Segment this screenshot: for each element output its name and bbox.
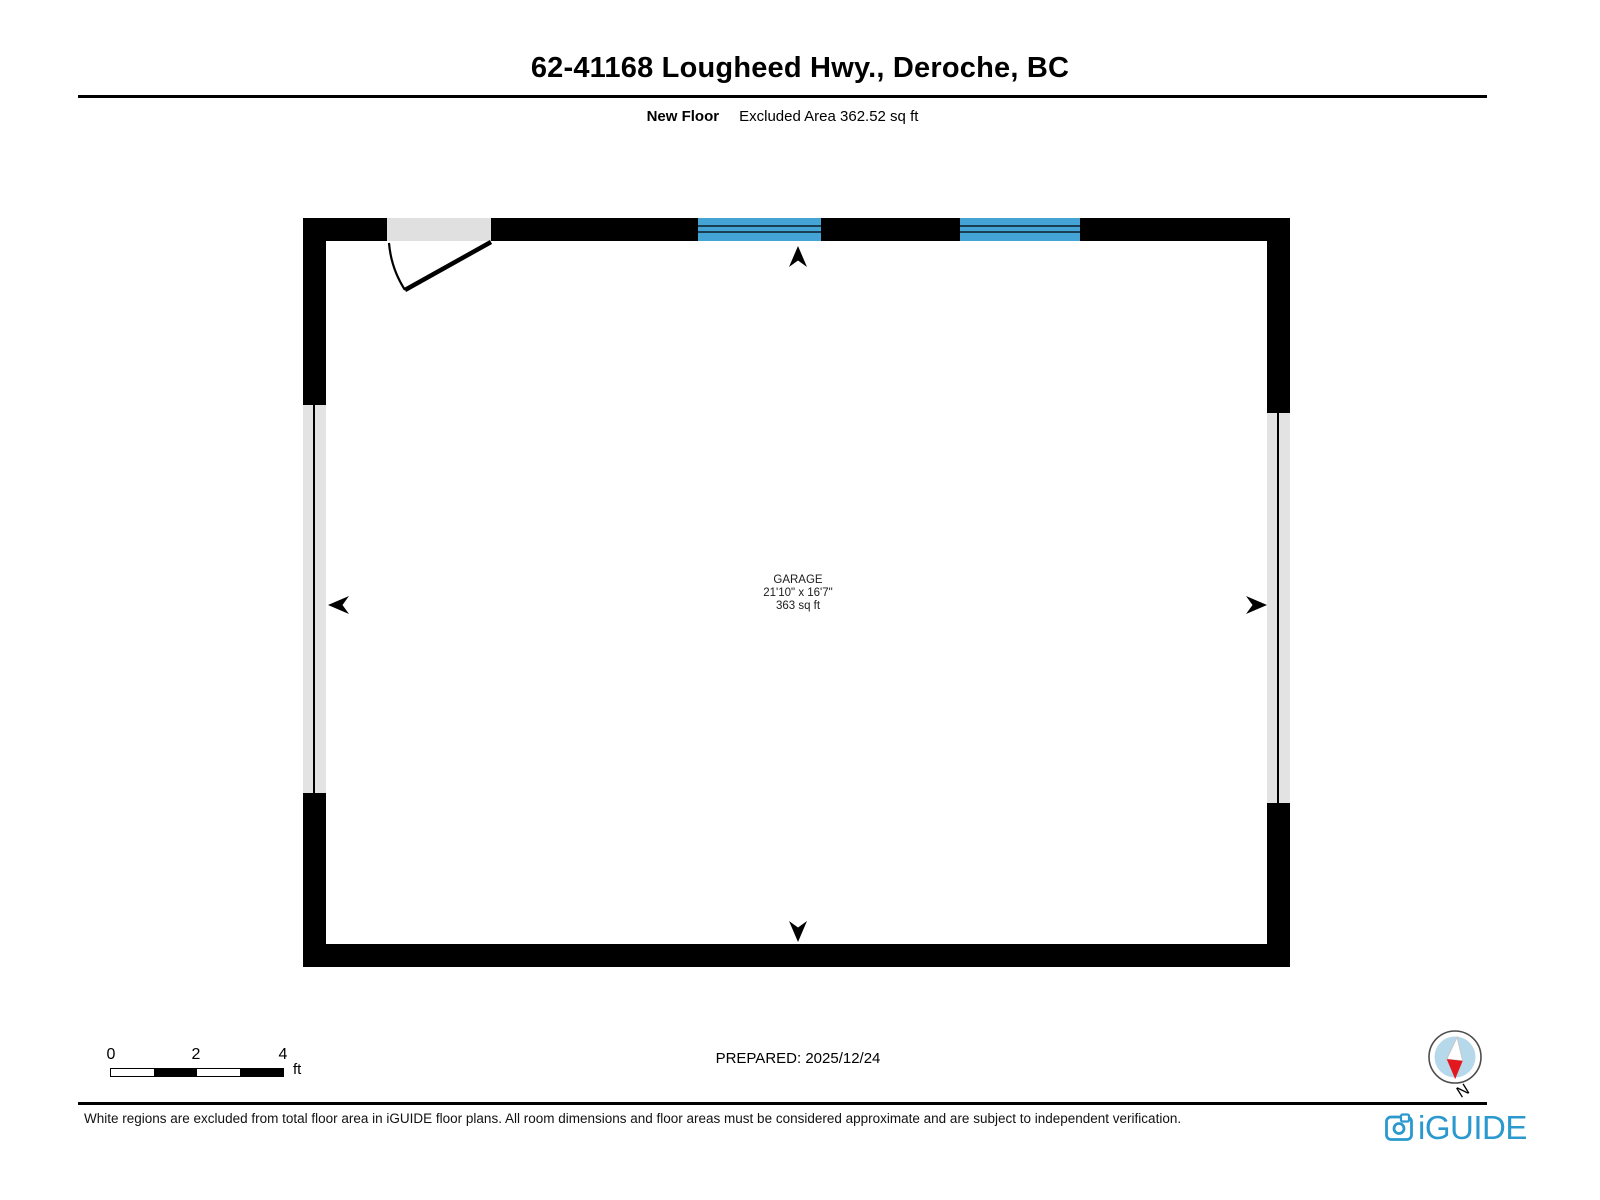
scale-segment — [240, 1069, 283, 1076]
wall-top-segment-2 — [821, 218, 960, 241]
wall-right-top — [1267, 218, 1290, 413]
wall-top-segment-3 — [1080, 218, 1290, 241]
room-label: GARAGE 21'10" x 16'7" 363 sq ft — [698, 574, 898, 613]
scale-unit-label: ft — [293, 1061, 301, 1078]
floor-subtitle: New FloorExcluded Area 362.52 sq ft — [78, 108, 1487, 125]
camera-arrow-down-icon — [789, 921, 807, 942]
disclaimer-text: White regions are excluded from total fl… — [84, 1111, 1234, 1126]
scale-segment — [111, 1069, 154, 1076]
wall-left-bottom — [303, 793, 326, 967]
floor-name-label: New Floor — [647, 108, 720, 125]
room-area: 363 sq ft — [698, 600, 898, 613]
scale-segment — [154, 1069, 197, 1076]
wall-left-top — [303, 218, 326, 405]
excluded-area-label: Excluded Area 362.52 sq ft — [739, 108, 918, 125]
scale-label-4: 4 — [274, 1046, 292, 1064]
window-icon — [698, 218, 821, 241]
window-icon — [960, 218, 1080, 241]
scale-label-0: 0 — [102, 1046, 120, 1064]
room-dimensions: 21'10" x 16'7" — [698, 587, 898, 600]
room-name: GARAGE — [698, 574, 898, 587]
footer-divider — [78, 1102, 1487, 1105]
compass-icon: N — [1424, 1028, 1488, 1108]
door-swing-icon — [380, 233, 510, 303]
wall-bottom — [303, 944, 1290, 967]
page-title: 62-41168 Lougheed Hwy., Deroche, BC — [0, 52, 1600, 85]
garage-door-right-icon — [1267, 413, 1290, 803]
camera-arrow-left-icon — [328, 596, 349, 614]
garage-door-left-icon — [303, 405, 326, 793]
camera-arrow-right-icon — [1246, 596, 1267, 614]
scale-label-2: 2 — [187, 1046, 205, 1064]
wall-top-segment-1 — [491, 218, 698, 241]
camera-arrow-up-icon — [789, 246, 807, 267]
scale-bar — [110, 1068, 284, 1077]
header-divider — [78, 95, 1487, 98]
compass-north-label: N — [1454, 1081, 1473, 1102]
wall-right-bottom — [1267, 803, 1290, 967]
prepared-date: PREPARED: 2025/12/24 — [648, 1050, 948, 1067]
iguide-wordmark: iGUIDE — [1418, 1111, 1527, 1144]
iguide-camera-icon — [1384, 1112, 1414, 1142]
scale-segment — [197, 1069, 240, 1076]
iguide-logo: iGUIDE — [1384, 1110, 1527, 1144]
